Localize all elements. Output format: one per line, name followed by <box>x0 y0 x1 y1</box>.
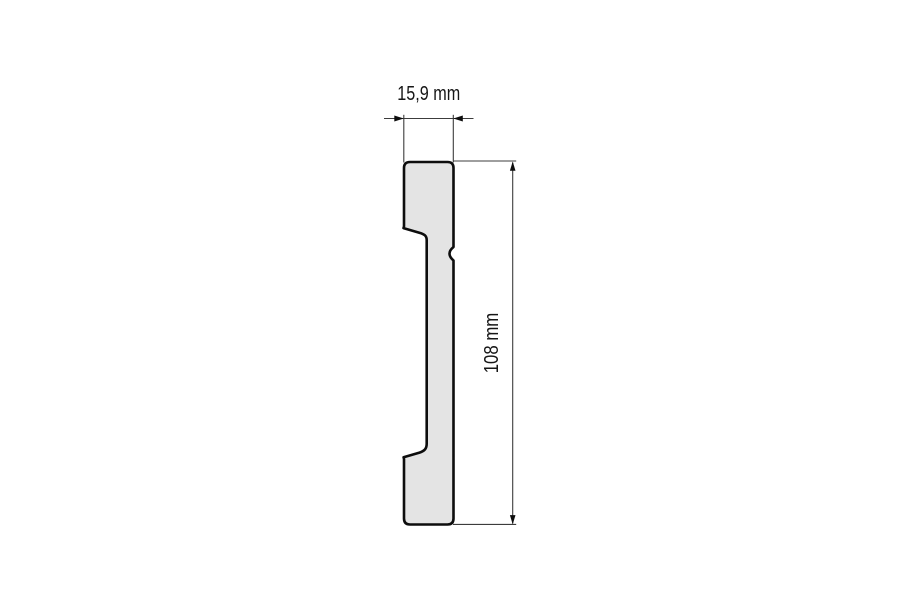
svg-text:15,9 mm: 15,9 mm <box>397 83 460 105</box>
svg-text:108 mm: 108 mm <box>481 313 503 374</box>
